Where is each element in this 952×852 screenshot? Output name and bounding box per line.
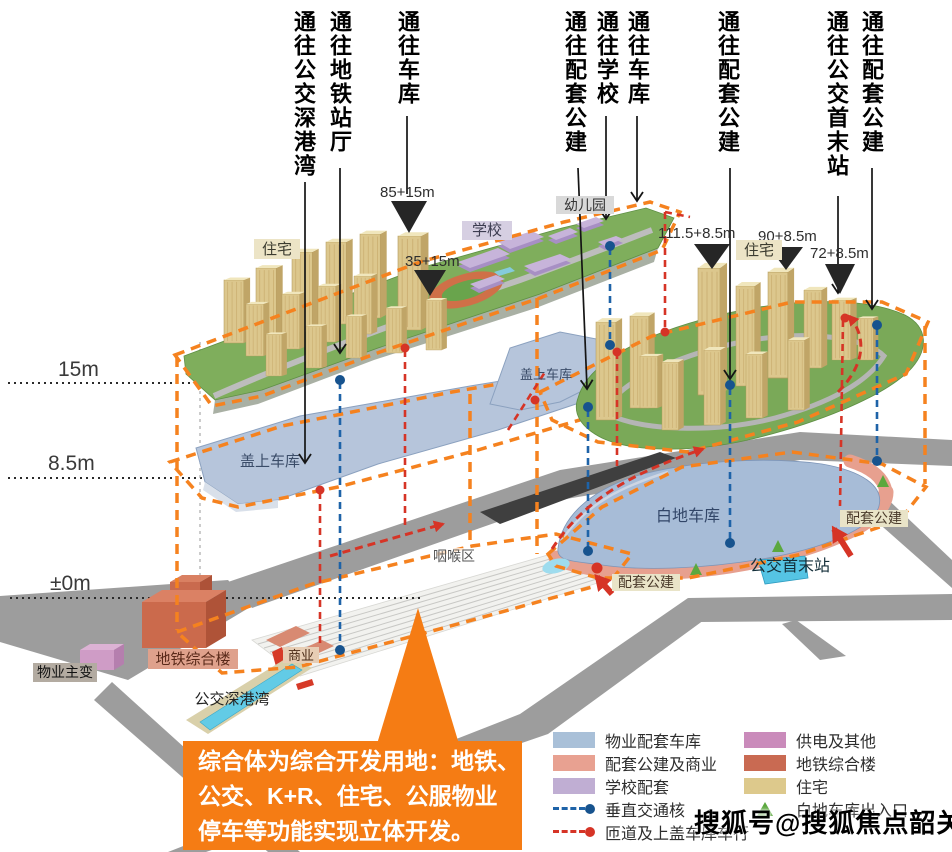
white-land-garage-label: 白地车库: [656, 507, 720, 525]
legend-label: 地铁综合楼: [796, 751, 876, 775]
annotation-to-bus-terminus: 通往公交首末站: [823, 10, 849, 178]
legend-label: 住宅: [796, 774, 828, 798]
elevation-8-5m: 8.5m: [48, 452, 95, 476]
diagram-canvas: 85+15m 35+15m 111.5+8.5m 90+8.5m 72+8.5m…: [0, 0, 952, 852]
annotation-to-metro-hall: 通往地铁站厅: [326, 10, 352, 154]
residential-left-label: 住宅: [262, 241, 292, 258]
swatch-support-commercial: [553, 755, 595, 771]
elevation-0m: ±0m: [50, 572, 91, 596]
swatch-residential: [744, 778, 786, 794]
legend-label: 学校配套: [605, 774, 669, 798]
legend-item-school-support: 学校配套: [553, 777, 749, 794]
bus-terminus-label: 公交首末站: [750, 557, 830, 575]
legend-item-support-commercial: 配套公建及商业: [553, 754, 749, 771]
legend-item-property-garage: 物业配套车库: [553, 731, 749, 748]
commercial-label: 商业: [288, 648, 314, 663]
elevation-15m: 15m: [58, 358, 99, 382]
height-72: 72+8.5m: [810, 245, 869, 262]
podium-garage-left-label: 盖上车库: [240, 453, 300, 470]
legend-label: 垂直交通核: [605, 797, 685, 821]
annotation-to-garage-2: 通往车库: [624, 10, 650, 106]
planning-diagram: 85+15m 35+15m 111.5+8.5m 90+8.5m 72+8.5m…: [0, 0, 952, 852]
annotation-to-garage-1: 通往车库: [394, 10, 420, 106]
dashed-line-blue-icon: [553, 801, 595, 817]
legend-item-metro-complex: 地铁综合楼: [744, 754, 908, 771]
height-111: 111.5+8.5m: [658, 225, 735, 242]
annotation-to-public-2: 通往配套公建: [714, 10, 740, 154]
swatch-property-garage: [553, 732, 595, 748]
legend-label: 配套公建及商业: [605, 751, 717, 775]
support-public-bottom-label: 配套公建: [618, 574, 674, 590]
callout-line-3: 停车等功能实现立体开发。: [198, 814, 522, 849]
height-85: 85+15m: [380, 184, 435, 201]
legend-label: 供电及其他: [796, 728, 876, 752]
residential-right-label: 住宅: [744, 242, 774, 259]
property-substation-label: 物业主变: [37, 664, 93, 680]
legend-item-power: 供电及其他: [744, 731, 908, 748]
legend-label: 物业配套车库: [605, 728, 701, 752]
swatch-metro-complex: [744, 755, 786, 771]
school-label: 学校: [472, 222, 502, 239]
annotation-to-bus-bay: 通往公交深港湾: [290, 10, 316, 178]
swatch-power: [744, 732, 786, 748]
dashed-line-red-icon: [553, 824, 595, 840]
kindergarten-label: 幼儿园: [564, 197, 606, 213]
annotation-to-public-3: 通往配套公建: [858, 10, 884, 154]
support-public-right-label: 配套公建: [846, 510, 902, 526]
annotation-to-public-1: 通往配套公建: [561, 10, 587, 154]
annotation-to-school: 通往学校: [593, 10, 619, 106]
swatch-school-support: [553, 778, 595, 794]
throat-area-label: 咽喉区: [433, 548, 475, 564]
metro-complex-label: 地铁综合楼: [155, 651, 230, 668]
watermark: 搜狐号@搜狐焦点韶关站: [694, 803, 952, 840]
podium-garage-right-label: 盖上车库: [520, 367, 572, 382]
height-35: 35+15m: [405, 253, 460, 270]
development-callout: 综合体为综合开发用地：地铁、 公交、K+R、住宅、公服物业 停车等功能实现立体开…: [183, 741, 522, 850]
callout-line-1: 综合体为综合开发用地：地铁、: [198, 744, 522, 779]
bus-bay-label: 公交深港湾: [194, 690, 269, 708]
callout-line-2: 公交、K+R、住宅、公服物业: [198, 779, 522, 814]
legend-item-residential: 住宅: [744, 777, 908, 794]
